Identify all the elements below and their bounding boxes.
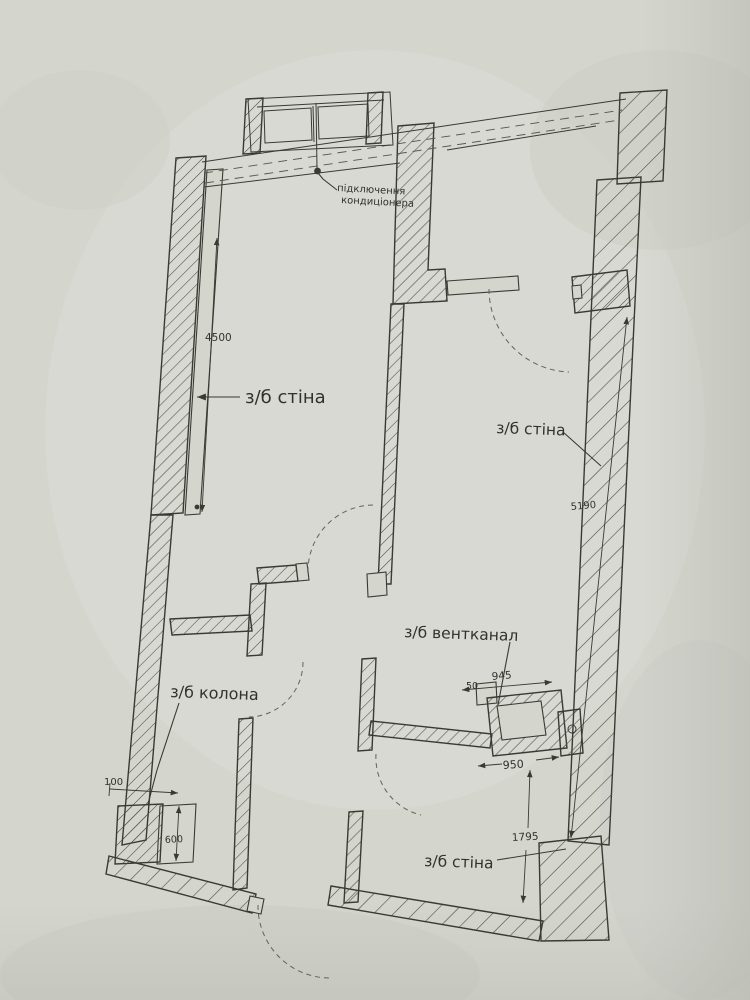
- wall-bottom-label: з/б стіна: [424, 852, 494, 872]
- bath-partition-cap: [296, 563, 309, 581]
- dim-text-100: 100: [104, 777, 123, 788]
- pilaster-end-dot: [195, 505, 200, 510]
- bath-partition-lower: [170, 615, 252, 635]
- scan-shadow-bottom: [0, 900, 750, 1000]
- entry-door-jamb-left: [247, 896, 264, 914]
- wall-corner-top-right: [617, 90, 667, 184]
- column-label: з/б колона: [170, 682, 259, 704]
- central-wall-jamb: [367, 572, 387, 597]
- dim-text-50: 50: [466, 681, 478, 692]
- ac-connection-dot: [314, 168, 321, 175]
- wall-right-label: з/б стіна: [496, 419, 566, 439]
- dim-text-950: 950: [502, 758, 524, 772]
- vent-channel-inner: [497, 701, 546, 740]
- wall-left-label: з/б стіна: [245, 387, 326, 408]
- dim-text-4500: 4500: [205, 332, 232, 344]
- bath-partition-top: [257, 565, 298, 584]
- floorplan-svg: підключення кондиціонера 4500 5190 945 5…: [0, 0, 750, 1000]
- dim-text-5190: 5190: [570, 500, 596, 513]
- dim-text-945: 945: [491, 669, 512, 683]
- concrete-column: [115, 804, 163, 864]
- bedroom-jamb-notch: [572, 285, 582, 299]
- dim-text-1795: 1795: [512, 831, 539, 844]
- dim-text-600: 600: [165, 834, 184, 846]
- scanned-floorplan-page: підключення кондиціонера 4500 5190 945 5…: [0, 0, 750, 1000]
